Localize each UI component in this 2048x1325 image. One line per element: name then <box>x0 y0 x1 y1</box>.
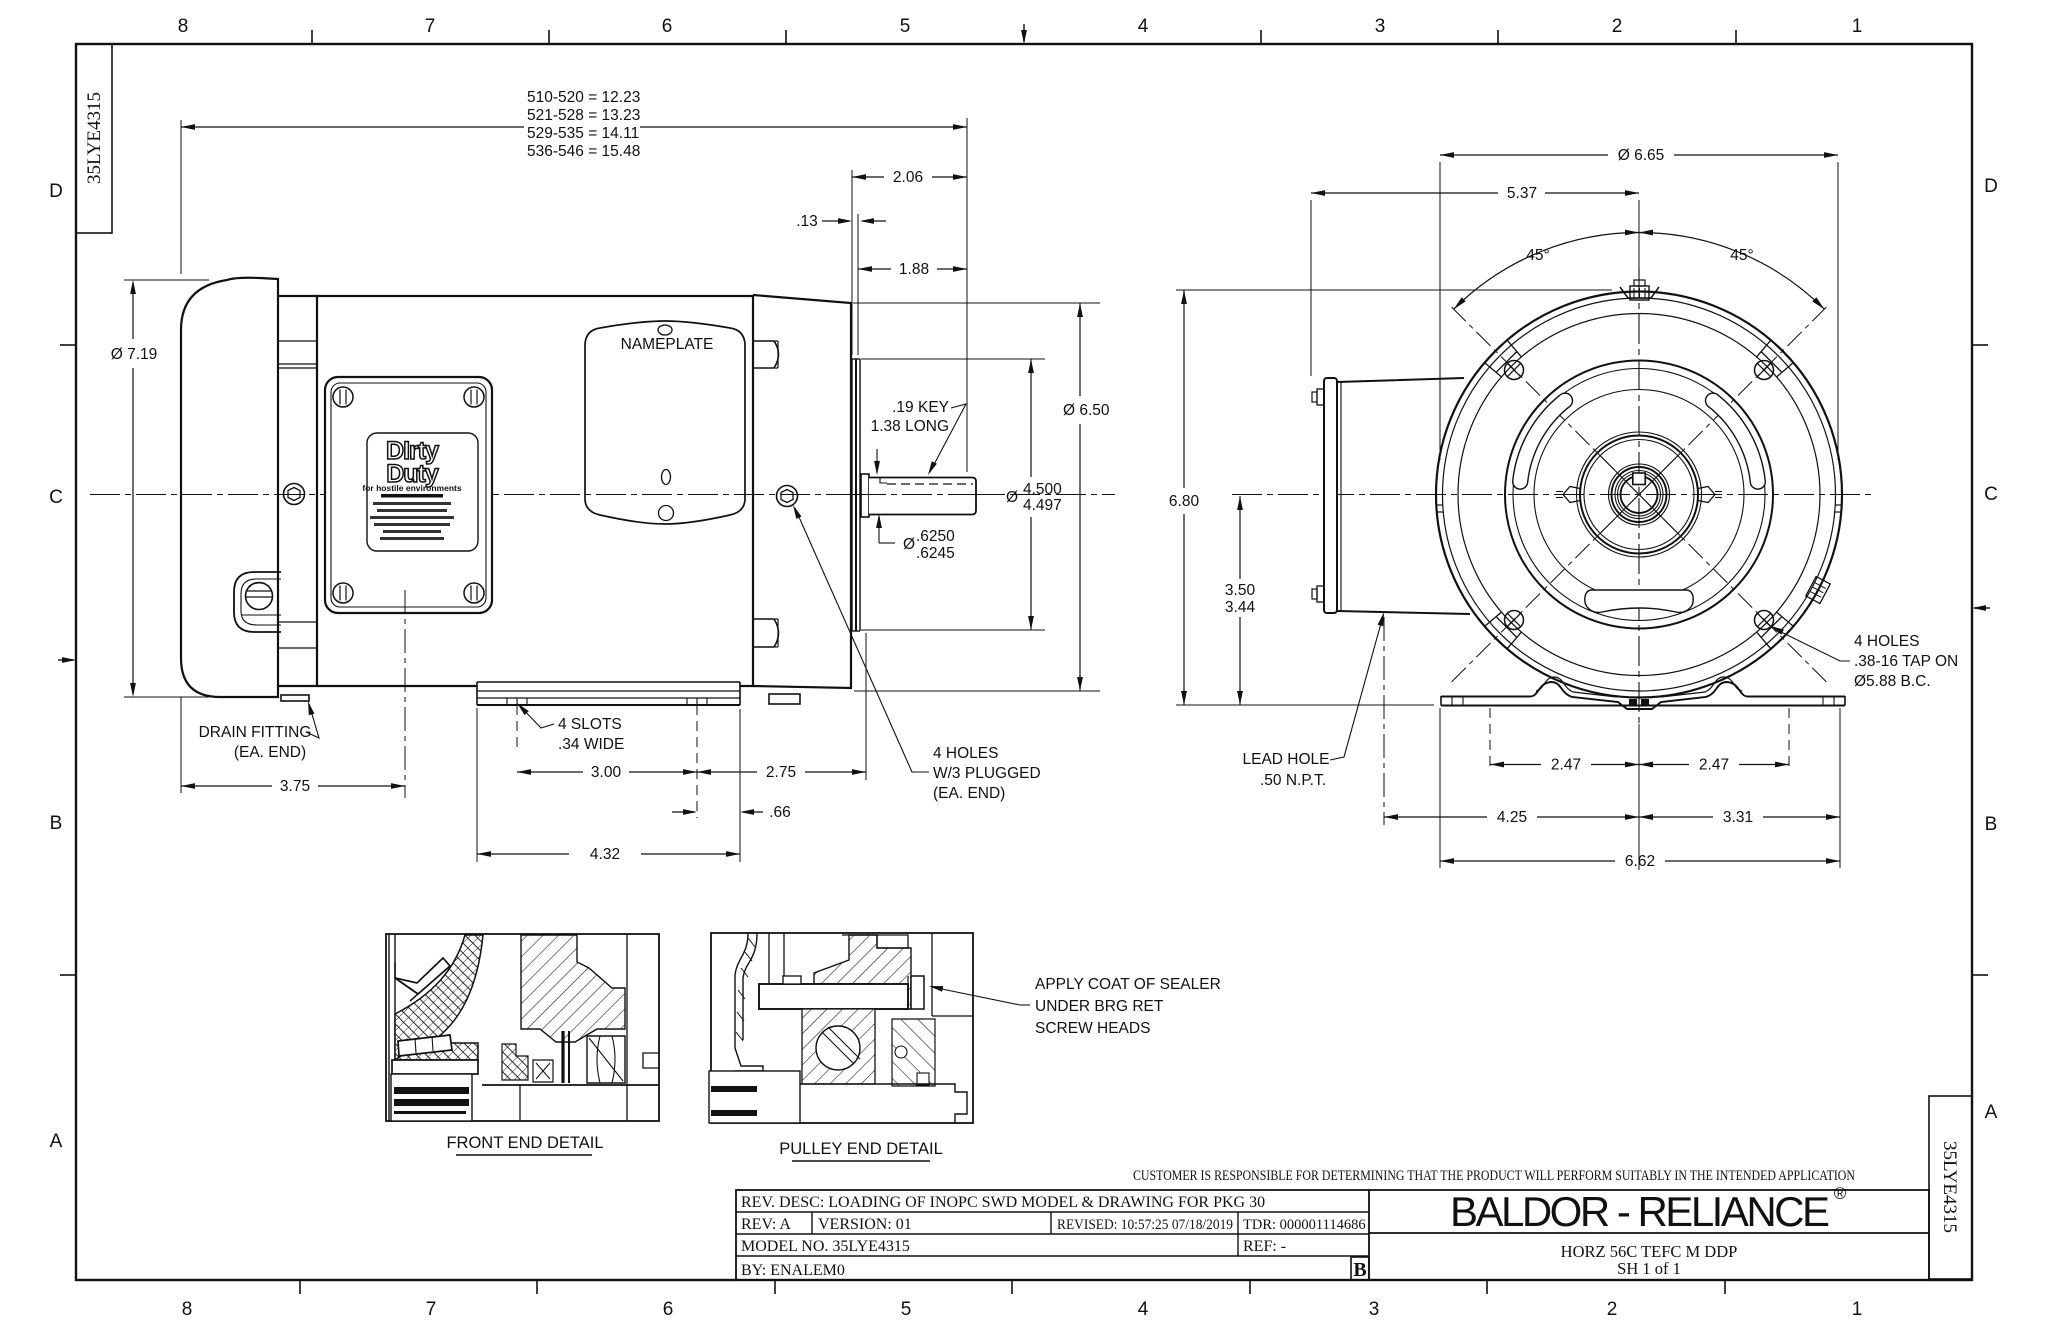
svg-text:for hostile environments: for hostile environments <box>362 483 461 493</box>
svg-text:4.497: 4.497 <box>1023 497 1062 514</box>
svg-text:3: 3 <box>1375 16 1386 37</box>
svg-text:1.88: 1.88 <box>899 261 929 278</box>
svg-text:FRONT END DETAIL: FRONT END DETAIL <box>446 1134 603 1152</box>
svg-text:Ø 6.50: Ø 6.50 <box>1063 402 1110 419</box>
svg-text:®: ® <box>1834 1184 1847 1203</box>
svg-text:521-528 = 13.23: 521-528 = 13.23 <box>527 107 640 124</box>
svg-text:NAMEPLATE: NAMEPLATE <box>621 336 714 353</box>
svg-text:4.32: 4.32 <box>590 846 620 863</box>
svg-text:W/3 PLUGGED: W/3 PLUGGED <box>933 765 1041 782</box>
svg-text:.66: .66 <box>769 804 791 821</box>
svg-text:2: 2 <box>1612 16 1623 37</box>
svg-text:4 HOLES: 4 HOLES <box>933 745 998 762</box>
svg-text:2.47: 2.47 <box>1551 757 1581 774</box>
svg-text:529-535 = 14.11: 529-535 = 14.11 <box>527 125 639 142</box>
svg-text:D: D <box>1984 176 1998 197</box>
svg-text:TDR: 000001114686: TDR: 000001114686 <box>1243 1217 1366 1233</box>
svg-text:45°: 45° <box>1730 247 1753 264</box>
svg-text:4: 4 <box>1138 1299 1149 1320</box>
svg-text:Ø 6.65: Ø 6.65 <box>1618 147 1665 164</box>
svg-text:6.80: 6.80 <box>1169 493 1200 510</box>
svg-text:C: C <box>1984 484 1998 505</box>
svg-text:536-546 = 15.48: 536-546 = 15.48 <box>527 143 640 160</box>
svg-text:1.38 LONG: 1.38 LONG <box>871 418 949 435</box>
svg-text:5.37: 5.37 <box>1507 185 1537 202</box>
svg-text:.19 KEY: .19 KEY <box>892 399 949 416</box>
svg-text:BY: ENALEM0: BY: ENALEM0 <box>741 1262 845 1279</box>
svg-text:5: 5 <box>900 16 911 37</box>
svg-text:510-520 = 12.23: 510-520 = 12.23 <box>527 89 640 106</box>
svg-text:3.75: 3.75 <box>280 778 310 795</box>
svg-text:B: B <box>1353 1259 1366 1281</box>
svg-text:.34 WIDE: .34 WIDE <box>558 736 624 753</box>
svg-text:4.500: 4.500 <box>1023 481 1062 498</box>
svg-text:Ø5.88 B.C.: Ø5.88 B.C. <box>1854 673 1931 690</box>
svg-text:PULLEY END DETAIL: PULLEY END DETAIL <box>779 1140 943 1158</box>
svg-text:MODEL NO. 35LYE4315: MODEL NO. 35LYE4315 <box>741 1238 910 1255</box>
svg-text:3.00: 3.00 <box>591 764 622 781</box>
svg-text:LEAD HOLE: LEAD HOLE <box>1242 751 1329 768</box>
svg-text:SH 1 of 1: SH 1 of 1 <box>1617 1259 1681 1278</box>
svg-text:APPLY COAT OF SEALER: APPLY COAT OF SEALER <box>1035 976 1221 993</box>
svg-text:35LYE4315: 35LYE4315 <box>84 92 105 184</box>
svg-text:.50 N.P.T.: .50 N.P.T. <box>1260 772 1326 789</box>
svg-text:.13: .13 <box>796 213 818 230</box>
svg-text:1: 1 <box>1852 16 1863 37</box>
svg-text:B: B <box>50 813 63 834</box>
svg-text:UNDER BRG RET: UNDER BRG RET <box>1035 998 1164 1015</box>
svg-text:Ø 7.19: Ø 7.19 <box>111 346 158 363</box>
svg-text:2.75: 2.75 <box>766 764 796 781</box>
svg-text:BALDOR - RELIANCE: BALDOR - RELIANCE <box>1450 1188 1830 1235</box>
svg-text:45°: 45° <box>1526 247 1549 264</box>
svg-text:4.25: 4.25 <box>1497 809 1527 826</box>
svg-text:(EA. END): (EA. END) <box>234 744 306 761</box>
svg-text:3: 3 <box>1369 1299 1380 1320</box>
svg-text:7: 7 <box>426 1299 437 1320</box>
svg-text:REV. DESC: LOADING OF INOPC SW: REV. DESC: LOADING OF INOPC SWD MODEL & … <box>741 1194 1265 1211</box>
svg-text:A: A <box>50 1131 63 1152</box>
svg-text:D: D <box>49 181 63 202</box>
svg-text:REF: -: REF: - <box>1243 1238 1286 1255</box>
svg-text:2.06: 2.06 <box>893 169 923 186</box>
svg-text:3.44: 3.44 <box>1225 599 1256 616</box>
svg-text:C: C <box>49 487 63 508</box>
svg-text:8: 8 <box>182 1299 193 1320</box>
svg-text:5: 5 <box>901 1299 912 1320</box>
svg-text:1: 1 <box>1852 1299 1863 1320</box>
svg-text:3.50: 3.50 <box>1225 582 1256 599</box>
svg-text:.6245: .6245 <box>916 545 955 562</box>
svg-text:4: 4 <box>1138 16 1149 37</box>
svg-text:CUSTOMER IS RESPONSIBLE FOR DE: CUSTOMER IS RESPONSIBLE FOR DETERMINING … <box>1133 1167 1855 1184</box>
svg-text:.38-16 TAP ON: .38-16 TAP ON <box>1854 653 1958 670</box>
svg-text:35LYE4315: 35LYE4315 <box>1939 1141 1960 1233</box>
svg-text:REV: A: REV: A <box>741 1216 791 1233</box>
svg-text:.6250: .6250 <box>916 528 955 545</box>
svg-text:(EA. END): (EA. END) <box>933 785 1005 802</box>
svg-text:B: B <box>1985 814 1998 835</box>
svg-text:6: 6 <box>662 16 673 37</box>
svg-text:6.62: 6.62 <box>1625 853 1655 870</box>
svg-text:DRAIN FITTING: DRAIN FITTING <box>199 724 312 741</box>
svg-text:Ø: Ø <box>903 536 915 553</box>
svg-text:3.31: 3.31 <box>1723 809 1753 826</box>
svg-text:7: 7 <box>425 16 436 37</box>
svg-text:VERSION: 01: VERSION: 01 <box>818 1216 912 1233</box>
svg-text:2.47: 2.47 <box>1699 757 1729 774</box>
svg-text:8: 8 <box>178 16 189 37</box>
svg-text:4 HOLES: 4 HOLES <box>1854 633 1919 650</box>
svg-text:4 SLOTS: 4 SLOTS <box>558 716 622 733</box>
svg-text:REVISED: 10:57:25 07/18/2019: REVISED: 10:57:25 07/18/2019 <box>1057 1217 1233 1233</box>
svg-text:2: 2 <box>1607 1299 1618 1320</box>
svg-text:6: 6 <box>663 1299 674 1320</box>
svg-text:A: A <box>1985 1102 1998 1123</box>
svg-text:Ø: Ø <box>1006 489 1018 506</box>
svg-text:SCREW HEADS: SCREW HEADS <box>1035 1020 1150 1037</box>
